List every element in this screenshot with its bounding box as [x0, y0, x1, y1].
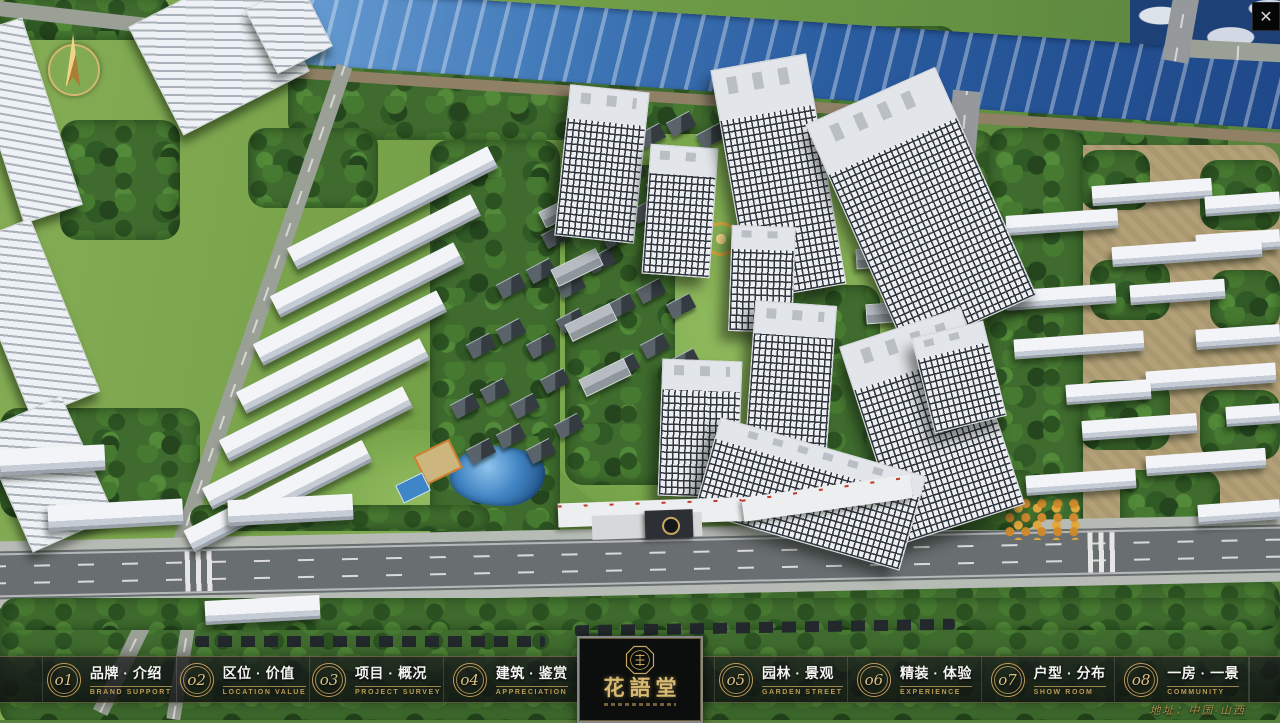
nav-text: 一房 · 一景 COMMUNITY	[1167, 663, 1239, 696]
nav-item-interior-experience[interactable]: o6 精装 · 体验 EXPERIENCE	[848, 657, 982, 702]
nav-text: 建筑 · 鉴赏 APPRECIATION	[496, 663, 568, 696]
nav-text: 品牌 · 介绍 BRAND SUPPORT	[90, 663, 172, 696]
nav-title: 区位 · 价值	[223, 663, 307, 683]
nav-number: o5	[727, 671, 746, 689]
nav-subtitle: EXPERIENCE	[900, 686, 972, 696]
nav-number-badge: o6	[857, 663, 891, 697]
nav-item-room-view[interactable]: o8 一房 · 一景 COMMUNITY	[1115, 657, 1249, 702]
tower	[642, 144, 719, 278]
nav-subtitle: PROJECT SURVEY	[355, 686, 441, 696]
navbar-spacer	[0, 657, 43, 702]
logo-hua-yu-tang[interactable]: 花語堂	[577, 636, 703, 723]
entrance-gate	[645, 509, 694, 539]
building	[47, 498, 183, 531]
nav-number: o6	[865, 671, 884, 689]
nav-text: 户型 · 分布 SHOW ROOM	[1034, 663, 1106, 696]
nav-item-floorplan-distribution[interactable]: o7 户型 · 分布 SHOW ROOM	[982, 657, 1116, 702]
nav-text: 区位 · 价值 LOCATION VALUE	[223, 663, 307, 696]
logo-title: 花語堂	[579, 676, 701, 700]
nav-number-badge: o1	[47, 663, 81, 697]
logo-subtext	[604, 703, 676, 706]
close-icon: ✕	[1259, 7, 1272, 27]
nav-item-brand-intro[interactable]: o1 品牌 · 介绍 BRAND SUPPORT	[43, 657, 177, 702]
map-viewport[interactable]	[0, 0, 1280, 720]
navbar-spacer	[1249, 657, 1280, 702]
building	[0, 444, 106, 475]
nav-subtitle: SHOW ROOM	[1034, 686, 1106, 696]
nav-subtitle: COMMUNITY	[1167, 686, 1239, 696]
nav-number: o4	[460, 671, 479, 689]
nav-number-badge: o4	[453, 663, 487, 697]
parked-cars	[195, 636, 545, 647]
tree-grove	[60, 120, 180, 240]
nav-number: o1	[55, 671, 74, 689]
compass-icon	[44, 32, 102, 100]
nav-number-badge: o3	[312, 663, 346, 697]
nav-subtitle: GARDEN STREET	[762, 686, 843, 696]
close-button[interactable]: ✕	[1252, 2, 1280, 31]
nav-number: o7	[998, 671, 1017, 689]
nav-title: 精装 · 体验	[900, 663, 972, 683]
nav-text: 精装 · 体验 EXPERIENCE	[900, 663, 972, 696]
tower	[554, 84, 649, 244]
nav-title: 品牌 · 介绍	[90, 663, 172, 683]
nav-item-project-overview[interactable]: o3 项目 · 概况 PROJECT SURVEY	[310, 657, 444, 702]
nav-number: o8	[1132, 671, 1151, 689]
nav-number: o3	[320, 671, 339, 689]
nav-number: o2	[187, 671, 206, 689]
nav-number-badge: o2	[180, 663, 214, 697]
nav-title: 建筑 · 鉴赏	[496, 663, 568, 683]
nav-number-badge: o7	[991, 663, 1025, 697]
nav-number-badge: o8	[1124, 663, 1158, 697]
building	[0, 218, 100, 419]
nav-text: 项目 · 概况 PROJECT SURVEY	[355, 663, 441, 696]
nav-title: 项目 · 概况	[355, 663, 441, 683]
seal-icon	[625, 645, 655, 675]
nav-item-location-value[interactable]: o2 区位 · 价值 LOCATION VALUE	[177, 657, 311, 702]
nav-text: 园林 · 景观 GARDEN STREET	[762, 663, 843, 696]
address-text: 地址：中国·山西	[1149, 702, 1246, 718]
nav-item-landscape[interactable]: o5 园林 · 景观 GARDEN STREET	[715, 657, 849, 702]
crosswalk	[1087, 532, 1120, 573]
nav-subtitle: APPRECIATION	[496, 686, 568, 696]
nav-number-badge: o5	[719, 663, 753, 697]
nav-title: 户型 · 分布	[1034, 663, 1106, 683]
nav-title: 园林 · 景观	[762, 663, 843, 683]
crosswalk	[185, 551, 218, 592]
building	[1225, 403, 1280, 427]
nav-item-architecture[interactable]: o4 建筑 · 鉴赏 APPRECIATION	[444, 657, 577, 702]
nav-subtitle: BRAND SUPPORT	[90, 686, 172, 696]
nav-title: 一房 · 一景	[1167, 663, 1239, 683]
nav-subtitle: LOCATION VALUE	[223, 686, 307, 696]
